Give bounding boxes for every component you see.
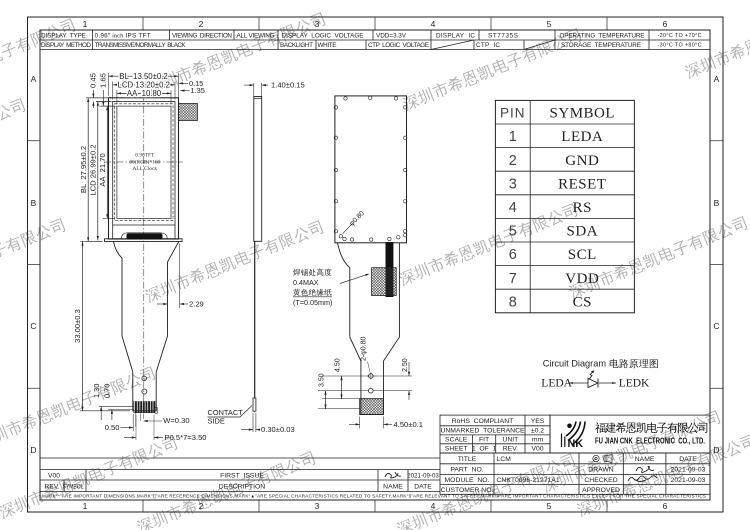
svg-text:FIRST ISSUE: FIRST ISSUE: [220, 473, 264, 480]
svg-text:-20°C TO +70°C: -20°C TO +70°C: [658, 33, 702, 39]
svg-text:P0.5*7=3.50: P0.5*7=3.50: [165, 433, 207, 442]
svg-text:CNKT0096-21271A1: CNKT0096-21271A1: [497, 477, 560, 484]
svg-text:3: 3: [509, 176, 517, 192]
svg-text:V00: V00: [531, 445, 543, 452]
svg-text:MARK“*”ARE IMPORTANT DIMENSION: MARK“*”ARE IMPORTANT DIMENSIONS,MARK“[]”…: [42, 494, 706, 499]
svg-text:ST7735S: ST7735S: [488, 33, 518, 40]
svg-text:Circuit Diagram: Circuit Diagram: [543, 359, 607, 369]
svg-text:D: D: [30, 445, 36, 455]
svg-text:ALL Clock: ALL Clock: [133, 166, 158, 172]
svg-text:4: 4: [509, 200, 517, 216]
svg-text:4: 4: [431, 19, 436, 29]
svg-text:FIT: FIT: [479, 437, 489, 444]
svg-text:1.65: 1.65: [99, 73, 108, 88]
svg-text:CTP IC: CTP IC: [476, 42, 500, 49]
svg-text:DATE: DATE: [679, 456, 697, 463]
svg-text:PIN: PIN: [500, 106, 526, 121]
svg-text:VDD=3.3V: VDD=3.3V: [376, 33, 407, 40]
svg-text:1.30: 1.30: [92, 384, 101, 398]
svg-text:0.96TFT: 0.96TFT: [135, 153, 155, 159]
svg-text:6: 6: [663, 19, 668, 29]
svg-text:80(RGB)*160: 80(RGB)*160: [129, 158, 160, 165]
svg-text:SYMBOL: SYMBOL: [63, 483, 84, 490]
svg-text:A: A: [714, 74, 720, 84]
svg-text:MODULE NO.: MODULE NO.: [445, 477, 490, 484]
svg-text:PART NO.: PART NO.: [450, 467, 483, 474]
svg-text:A: A: [31, 74, 37, 84]
svg-text:AA 21.70: AA 21.70: [98, 153, 107, 186]
svg-text:FU JIAN CNK ELECTRONIC CO.,: FU JIAN CNK ELECTRONIC CO., LTD.: [595, 437, 705, 446]
svg-text:3.50: 3.50: [318, 373, 325, 387]
svg-text:LEDA: LEDA: [541, 378, 572, 390]
svg-text:UNMARKED TOLERANCE: UNMARKED TOLERANCE: [440, 427, 525, 434]
svg-text:DISPLAY IC: DISPLAY IC: [436, 33, 475, 40]
svg-text:V00: V00: [48, 473, 60, 480]
svg-text:NAME: NAME: [635, 456, 655, 463]
svg-text:6: 6: [663, 501, 668, 511]
svg-text:UNIT: UNIT: [502, 437, 518, 444]
svg-text:SCL: SCL: [568, 247, 597, 263]
svg-text:DESCRIPTION: DESCRIPTION: [219, 483, 266, 490]
svg-text:SHEET: SHEET: [445, 445, 468, 452]
svg-text:0.70: 0.70: [103, 384, 112, 398]
svg-text:VDD: VDD: [565, 271, 599, 287]
svg-text:C: C: [30, 321, 36, 331]
svg-text:0.50: 0.50: [105, 423, 120, 432]
svg-text:STORAGE TEMPERATURE: STORAGE TEMPERATURE: [561, 42, 641, 49]
svg-text:3: 3: [315, 501, 320, 511]
svg-text:SYMBOL: SYMBOL: [550, 106, 616, 122]
svg-text:2021-09-03: 2021-09-03: [671, 467, 706, 474]
svg-text:8: 8: [509, 294, 517, 310]
svg-text:LCD 26.99±0.2: LCD 26.99±0.2: [89, 144, 98, 195]
svg-text:33.00±0.3: 33.00±0.3: [73, 309, 82, 343]
svg-text:TITLE: TITLE: [458, 456, 477, 463]
svg-text:0.30±0.03: 0.30±0.03: [261, 425, 295, 434]
svg-text:RESET: RESET: [558, 176, 606, 192]
svg-text:DISPLAY LOGIC VOLTAGE: DISPLAY LOGIC VOLTAGE: [282, 33, 364, 40]
svg-text:4.50±0.1: 4.50±0.1: [394, 420, 424, 429]
svg-text:3: 3: [315, 19, 320, 29]
svg-text:7: 7: [509, 271, 517, 287]
svg-text:0.4MAX: 0.4MAX: [293, 278, 319, 287]
svg-text:W=0.30: W=0.30: [163, 416, 189, 425]
svg-text:CTP LOGIC VOLTAGE: CTP LOGIC VOLTAGE: [368, 42, 429, 49]
svg-text:6: 6: [509, 247, 517, 263]
svg-text:1 OF 1: 1 OF 1: [472, 445, 497, 452]
svg-text:1: 1: [509, 129, 517, 145]
svg-text:YES: YES: [531, 418, 545, 425]
svg-text:D: D: [713, 445, 719, 455]
svg-text:2: 2: [509, 153, 517, 169]
svg-text:5: 5: [547, 501, 552, 511]
svg-text:BL 27.95±0.2: BL 27.95±0.2: [79, 146, 88, 193]
svg-text:WHITE: WHITE: [318, 42, 337, 49]
svg-text:0.96″ inch IPS TFT: 0.96″ inch IPS TFT: [95, 33, 151, 40]
svg-text:RoHS COMPLIANT: RoHS COMPLIANT: [452, 418, 514, 425]
svg-text:REV.: REV.: [44, 483, 59, 490]
svg-text:SCALE: SCALE: [445, 437, 468, 444]
svg-text:B: B: [31, 198, 37, 208]
svg-text:DISPLAY TYPE: DISPLAY TYPE: [41, 33, 86, 40]
svg-text:2-φ0.80: 2-φ0.80: [360, 337, 367, 361]
svg-text:2021-09-03: 2021-09-03: [671, 477, 706, 484]
svg-text:(T=0.05mm): (T=0.05mm): [293, 298, 332, 307]
svg-text:2.29: 2.29: [189, 300, 204, 309]
svg-text:TRANSMISSIVE/NORMALLY BLACK: TRANSMISSIVE/NORMALLY BLACK: [95, 42, 187, 49]
svg-text:2: 2: [199, 501, 204, 511]
svg-text:0.45: 0.45: [89, 73, 98, 88]
svg-text:NAME: NAME: [383, 483, 403, 490]
svg-text:4: 4: [431, 501, 436, 511]
svg-text:LCM: LCM: [497, 456, 512, 463]
svg-text:DATE: DATE: [414, 483, 432, 490]
svg-text:LEDK: LEDK: [619, 378, 650, 390]
svg-text:NK: NK: [568, 438, 584, 450]
svg-text:5: 5: [547, 19, 552, 29]
svg-text:C: C: [713, 321, 719, 331]
svg-text:1.40±0.15: 1.40±0.15: [271, 81, 305, 90]
svg-text:SIDE: SIDE: [208, 417, 225, 426]
svg-text:1.35: 1.35: [191, 86, 205, 95]
svg-text:2: 2: [199, 19, 204, 29]
svg-text:AA 10.80: AA 10.80: [127, 89, 162, 98]
svg-text:LEDA: LEDA: [561, 129, 603, 145]
svg-text:-30°C TO +80°C: -30°C TO +80°C: [658, 43, 702, 49]
svg-text:2021-09-03: 2021-09-03: [407, 473, 439, 480]
svg-text:DRAWN: DRAWN: [588, 467, 614, 474]
svg-text:1: 1: [83, 501, 88, 511]
svg-text:REV.: REV.: [503, 445, 518, 452]
svg-text:5: 5: [509, 224, 517, 240]
svg-text:DISPLAY METHOD: DISPLAY METHOD: [41, 42, 91, 49]
svg-text:CHECKED: CHECKED: [584, 477, 617, 484]
svg-text:VIEWING DIRECTION: VIEWING DIRECTION: [172, 33, 232, 40]
svg-text:B: B: [714, 198, 720, 208]
svg-text:±0.2: ±0.2: [531, 427, 544, 434]
svg-text:RS: RS: [573, 200, 592, 216]
svg-text:2.50: 2.50: [402, 358, 409, 372]
svg-text:4.50: 4.50: [334, 358, 341, 372]
svg-text:BACKLIGHT: BACKLIGHT: [280, 42, 313, 49]
svg-text:mm: mm: [532, 437, 544, 444]
svg-text:1: 1: [83, 19, 88, 29]
svg-text:GND: GND: [565, 153, 599, 169]
svg-text:CS: CS: [573, 294, 592, 310]
svg-text:ALL VIEWING: ALL VIEWING: [237, 33, 275, 40]
svg-text:OPERATING TEMPERATURE: OPERATING TEMPERATURE: [560, 33, 645, 40]
svg-text:SDA: SDA: [567, 224, 599, 240]
